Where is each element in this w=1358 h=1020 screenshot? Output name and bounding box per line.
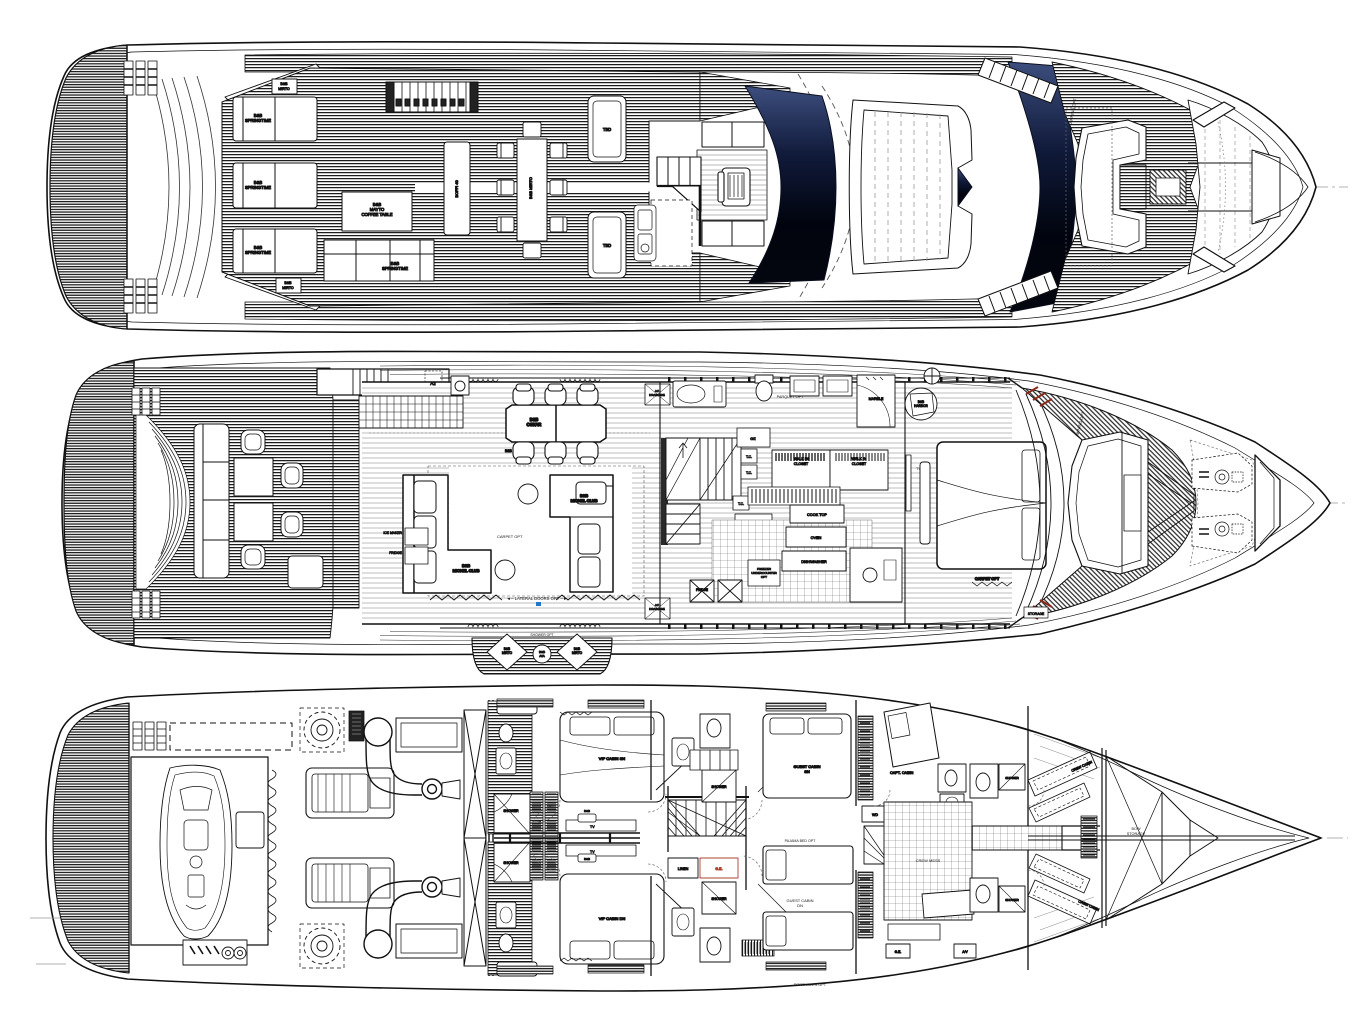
svg-text:SN: SN [804, 769, 810, 774]
svg-text:MIRTO: MIRTO [278, 87, 290, 91]
svg-text:CAPT. CABIN: CAPT. CABIN [890, 771, 914, 775]
svg-text:SHOWER: SHOWER [711, 785, 727, 789]
svg-text:PAJAMA BED OPT: PAJAMA BED OPT [785, 839, 816, 843]
svg-text:GE: GE [750, 437, 756, 441]
svg-text:CARPET OPT: CARPET OPT [975, 577, 1000, 581]
svg-text:T.C.: T.C. [746, 455, 752, 459]
svg-text:DN: DN [797, 903, 803, 908]
svg-text:A2: A2 [430, 381, 436, 386]
svg-text:AVA: AVA [539, 654, 545, 658]
svg-text:SHOWER: SHOWER [1005, 776, 1019, 780]
svg-text:PORTHOLES OPT: PORTHOLES OPT [794, 983, 827, 987]
svg-text:DRAINAGE: DRAINAGE [649, 607, 665, 611]
svg-text:VIP CABIN SN: VIP CABIN SN [599, 756, 625, 761]
svg-text:OVEN: OVEN [811, 536, 822, 540]
svg-text:LINEN: LINEN [678, 867, 689, 871]
svg-text:T.C.: T.C. [746, 471, 752, 475]
svg-text:TV: TV [590, 850, 595, 854]
svg-text:TBD: TBD [603, 127, 611, 132]
svg-text:CREW MESS: CREW MESS [916, 858, 941, 863]
svg-text:B&B: B&B [584, 809, 590, 813]
svg-text:WD: WD [872, 813, 878, 817]
svg-text:FRIDGE: FRIDGE [389, 551, 403, 555]
svg-text:MICHEL CLUB: MICHEL CLUB [453, 568, 480, 573]
svg-text:B&B: B&B [284, 281, 292, 285]
svg-text:HARBOR: HARBOR [914, 404, 928, 408]
svg-text:T.C.: T.C. [738, 502, 744, 506]
svg-text:CARPET OPT: CARPET OPT [497, 534, 523, 539]
svg-text:VIP CABIN DN: VIP CABIN DN [599, 916, 626, 921]
svg-text:SHOWER: SHOWER [503, 809, 519, 813]
svg-text:DRAINAGE: DRAINAGE [649, 393, 665, 397]
svg-text:STORAGE: STORAGE [1028, 612, 1045, 616]
svg-text:SHOWER: SHOWER [503, 861, 519, 865]
svg-text:B&B MIRTO: B&B MIRTO [528, 177, 533, 199]
svg-text:SHOWER: SHOWER [711, 897, 727, 901]
svg-text:A/V: A/V [962, 950, 968, 954]
svg-text:G.E.: G.E. [895, 950, 902, 954]
svg-text:B&B: B&B [584, 857, 590, 861]
svg-text:SPRINGTIME: SPRINGTIME [245, 118, 271, 123]
svg-text:B&B: B&B [280, 82, 288, 86]
svg-text:CLOSET: CLOSET [852, 462, 867, 466]
svg-text:MICHEL CLUB: MICHEL CLUB [571, 498, 598, 503]
svg-text:STORAGE: STORAGE [1127, 832, 1146, 836]
svg-text:B&B: B&B [505, 449, 513, 453]
svg-text:MIRTO: MIRTO [282, 286, 294, 290]
svg-text:TV: TV [590, 825, 595, 829]
svg-text:◄─ LATERAL DOORS OPT ─►: ◄─ LATERAL DOORS OPT ─► [507, 596, 568, 601]
svg-text:SPRINGTIME: SPRINGTIME [245, 250, 271, 255]
svg-text:SPRINGTIME: SPRINGTIME [245, 185, 271, 190]
svg-text:ICE MAKER: ICE MAKER [383, 531, 402, 535]
svg-text:MARBLE: MARBLE [869, 397, 884, 401]
svg-text:SHOWER: SHOWER [1005, 898, 1019, 902]
svg-text:MIRTO: MIRTO [572, 651, 583, 655]
svg-text:BOFFI 40: BOFFI 40 [454, 180, 459, 198]
svg-text:OPT: OPT [761, 575, 767, 579]
svg-text:MIRTO: MIRTO [502, 651, 513, 655]
svg-text:SHOWER OPT: SHOWER OPT [530, 633, 553, 637]
svg-text:FRIDGE: FRIDGE [696, 588, 708, 592]
svg-text:COFFEE TABLE: COFFEE TABLE [361, 212, 392, 217]
svg-text:CLOSET: CLOSET [794, 462, 809, 466]
svg-text:COOK TOP: COOK TOP [807, 513, 827, 517]
svg-text:SPRINGTIME: SPRINGTIME [382, 266, 408, 271]
svg-text:TBD: TBD [603, 243, 611, 248]
svg-text:OSKAR: OSKAR [527, 422, 542, 427]
svg-text:G.E.: G.E. [715, 867, 722, 871]
svg-text:DISHWASHER: DISHWASHER [801, 560, 827, 564]
svg-text:BOW: BOW [1131, 827, 1140, 831]
